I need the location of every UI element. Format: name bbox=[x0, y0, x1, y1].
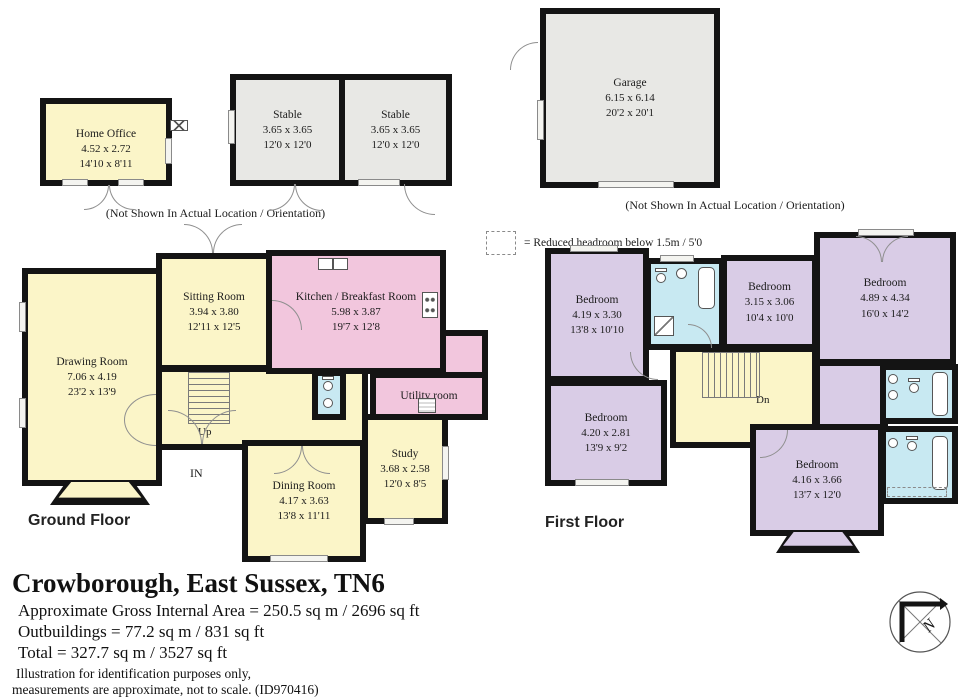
room-size-imperial: 13'8 x 10'10 bbox=[570, 323, 623, 338]
room-bedroom-2: Bedroom 3.15 x 3.06 10'4 x 10'0 bbox=[721, 255, 818, 350]
floor-plan-canvas: Home Office 4.52 x 2.72 14'10 x 8'11 (No… bbox=[0, 0, 980, 700]
room-size-metric: 5.98 x 3.87 bbox=[331, 305, 381, 320]
sink-icon bbox=[888, 374, 898, 384]
toilet-icon bbox=[322, 376, 334, 391]
outbuildings-area: Outbuildings = 77.2 sq m / 831 sq ft bbox=[18, 622, 264, 642]
kitchen-sink-icon bbox=[318, 258, 348, 270]
window bbox=[358, 179, 400, 186]
room-size-imperial: 12'0 x 8'5 bbox=[384, 477, 426, 492]
room-size-imperial: 10'4 x 10'0 bbox=[746, 311, 794, 326]
room-name: Bedroom bbox=[576, 292, 619, 308]
room-garage: Garage 6.15 x 6.14 20'2 x 20'1 bbox=[540, 8, 720, 188]
room-study: Study 3.68 x 2.58 12'0 x 8'5 bbox=[362, 414, 448, 524]
room-name: Study bbox=[392, 446, 419, 462]
room-size-metric: 4.89 x 4.34 bbox=[860, 291, 910, 306]
window bbox=[384, 518, 414, 525]
toilet-tank bbox=[655, 268, 667, 272]
window bbox=[537, 100, 544, 140]
toilet-bowl bbox=[656, 273, 666, 283]
room-name: Bedroom bbox=[864, 275, 907, 291]
toilet-bowl bbox=[323, 381, 333, 391]
room-size-imperial: 16'0 x 14'2 bbox=[861, 307, 909, 322]
window bbox=[228, 110, 235, 144]
shower-icon bbox=[654, 316, 674, 336]
garage-door bbox=[598, 181, 674, 188]
stove-icon bbox=[422, 292, 438, 318]
first-floor-corridor bbox=[814, 360, 888, 432]
room-size-imperial: 14'10 x 8'11 bbox=[79, 157, 132, 172]
room-name: Drawing Room bbox=[56, 354, 127, 370]
window bbox=[62, 179, 88, 186]
reduced-headroom-legend-swatch bbox=[486, 231, 516, 255]
page-title: Crowborough, East Sussex, TN6 bbox=[12, 568, 385, 599]
toilet-icon bbox=[906, 436, 918, 451]
door-arc bbox=[404, 184, 435, 215]
gross-internal-area: Approximate Gross Internal Area = 250.5 … bbox=[18, 601, 419, 621]
room-home-office: Home Office 4.52 x 2.72 14'10 x 8'11 bbox=[40, 98, 172, 186]
toilet-tank bbox=[908, 378, 920, 382]
room-stable-1: Stable 3.65 x 3.65 12'0 x 12'0 bbox=[230, 74, 345, 186]
window bbox=[165, 138, 172, 164]
staircase-down bbox=[702, 352, 760, 398]
window bbox=[118, 179, 144, 186]
compass-north-label: N bbox=[919, 615, 940, 636]
room-name: Bedroom bbox=[585, 410, 628, 426]
room-size-imperial: 13'9 x 9'2 bbox=[585, 441, 627, 456]
room-size-imperial: 20'2 x 20'1 bbox=[606, 106, 654, 121]
room-size-imperial: 13'8 x 11'11 bbox=[278, 509, 331, 524]
toilet-icon bbox=[655, 268, 667, 283]
room-name: Home Office bbox=[76, 126, 136, 142]
room-name: Kitchen / Breakfast Room bbox=[296, 289, 416, 305]
room-size-imperial: 12'11 x 12'5 bbox=[187, 320, 240, 335]
room-size-imperial: 19'7 x 12'8 bbox=[332, 320, 380, 335]
room-size-metric: 4.16 x 3.66 bbox=[792, 473, 842, 488]
reduced-headroom-area bbox=[887, 487, 947, 497]
sink-icon bbox=[676, 268, 687, 279]
not-shown-note-right: (Not Shown In Actual Location / Orientat… bbox=[615, 198, 855, 213]
room-name: Dining Room bbox=[273, 478, 336, 494]
room-name: Bedroom bbox=[748, 279, 791, 295]
room-size-metric: 3.65 x 3.65 bbox=[371, 123, 421, 138]
room-name: Stable bbox=[381, 107, 410, 123]
door-arc bbox=[184, 224, 213, 253]
room-name: Sitting Room bbox=[183, 289, 245, 305]
window bbox=[570, 245, 618, 252]
toilet-icon bbox=[908, 378, 920, 393]
room-sitting-room: Sitting Room 3.94 x 3.80 12'11 x 12'5 bbox=[156, 253, 272, 371]
window bbox=[660, 255, 694, 262]
sink-icon bbox=[323, 398, 333, 408]
disclaimer-line-1: Illustration for identification purposes… bbox=[16, 666, 251, 682]
window bbox=[19, 398, 26, 428]
sink-icon bbox=[888, 390, 898, 400]
window bbox=[442, 446, 449, 480]
room-size-metric: 4.17 x 3.63 bbox=[279, 494, 329, 509]
window bbox=[575, 479, 629, 486]
room-size-metric: 4.52 x 2.72 bbox=[81, 142, 131, 157]
bathtub-icon bbox=[932, 436, 948, 490]
compass-icon: N bbox=[888, 590, 952, 654]
entrance-label: IN bbox=[190, 466, 203, 481]
toilet-bowl bbox=[907, 441, 917, 451]
door-arc bbox=[213, 224, 242, 253]
window bbox=[858, 229, 914, 236]
room-size-metric: 4.19 x 3.30 bbox=[572, 308, 622, 323]
room-name: Stable bbox=[273, 107, 302, 123]
room-size-metric: 3.15 x 3.06 bbox=[745, 295, 795, 310]
room-bedroom-4: Bedroom 4.20 x 2.81 13'9 x 9'2 bbox=[545, 380, 667, 486]
room-size-imperial: 13'7 x 12'0 bbox=[793, 488, 841, 503]
room-size-metric: 3.65 x 3.65 bbox=[263, 123, 313, 138]
room-name: Bedroom bbox=[796, 457, 839, 473]
room-drawing-room: Drawing Room 7.06 x 4.19 23'2 x 13'9 bbox=[22, 268, 162, 486]
toilet-tank bbox=[906, 436, 918, 440]
room-size-imperial: 12'0 x 12'0 bbox=[264, 138, 312, 153]
window bbox=[19, 302, 26, 332]
room-size-imperial: 12'0 x 12'0 bbox=[372, 138, 420, 153]
room-size-metric: 4.20 x 2.81 bbox=[581, 426, 631, 441]
first-floor-label: First Floor bbox=[545, 514, 624, 532]
room-size-metric: 3.68 x 2.58 bbox=[380, 462, 430, 477]
sink-icon bbox=[888, 438, 898, 448]
ground-floor-label: Ground Floor bbox=[28, 512, 130, 530]
rooflight-icon bbox=[170, 120, 188, 131]
disclaimer-line-2: measurements are approximate, not to sca… bbox=[12, 682, 319, 698]
toilet-bowl bbox=[909, 383, 919, 393]
window bbox=[270, 555, 328, 562]
room-size-metric: 3.94 x 3.80 bbox=[189, 305, 239, 320]
total-area: Total = 327.7 sq m / 3527 sq ft bbox=[18, 643, 227, 663]
utility-sink-icon bbox=[418, 398, 436, 413]
room-size-metric: 7.06 x 4.19 bbox=[67, 370, 117, 385]
door-arc bbox=[510, 42, 538, 70]
bathtub-icon bbox=[698, 267, 715, 309]
room-size-imperial: 23'2 x 13'9 bbox=[68, 385, 116, 400]
room-size-metric: 6.15 x 6.14 bbox=[605, 91, 655, 106]
bathtub-icon bbox=[932, 372, 948, 416]
room-stable-2: Stable 3.65 x 3.65 12'0 x 12'0 bbox=[339, 74, 452, 186]
room-name: Garage bbox=[613, 75, 646, 91]
toilet-tank bbox=[322, 376, 334, 380]
